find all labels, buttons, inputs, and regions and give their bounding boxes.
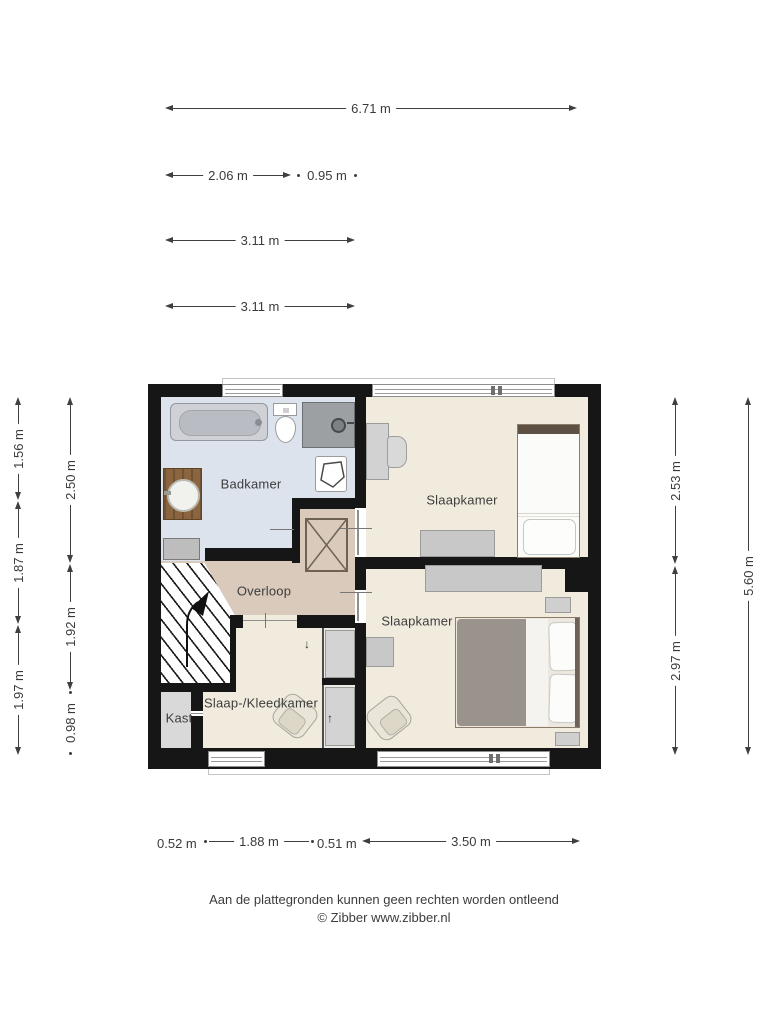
bed-footboard <box>518 425 579 434</box>
wall <box>158 683 236 692</box>
closet-door-panel <box>191 713 203 714</box>
shower-drain-icon <box>331 418 346 433</box>
door-threshold <box>265 613 266 628</box>
door-threshold <box>340 528 372 529</box>
wall <box>230 617 236 692</box>
sliding-door-arrow-down-icon: ↓ <box>304 638 310 650</box>
dimension-top-seg1: 2.06 m <box>165 171 291 180</box>
window <box>222 384 283 397</box>
wall <box>355 397 366 508</box>
sink-basin-icon <box>167 479 200 512</box>
window-divider <box>491 386 495 395</box>
headboard <box>575 618 579 727</box>
dimension-left-outer-3: 1.97 m <box>14 625 23 755</box>
dimension-left-inner-2: 1.92 m <box>66 564 75 690</box>
sliding-door-track <box>322 628 324 678</box>
window <box>372 384 555 397</box>
sliding-door-track <box>322 685 324 748</box>
bathroom-door-threshold <box>270 529 294 530</box>
room-label-slaapkamer-top: Slaapkamer <box>426 493 497 508</box>
copyright-text: © Zibber www.zibber.nl <box>0 910 768 925</box>
shower-icon <box>302 402 355 448</box>
window-divider <box>489 754 493 763</box>
room-label-overloop: Overloop <box>237 584 291 599</box>
window-sill <box>208 768 550 775</box>
dimension-right-outer: 5.60 m <box>744 397 753 755</box>
sink-faucet-icon <box>164 491 171 495</box>
room-label-badkamer: Badkamer <box>221 477 282 492</box>
dimension-left-inner-3: 0.98 m <box>66 691 75 755</box>
duvet <box>457 619 526 726</box>
dimension-top-total: 6.71 m <box>165 104 577 113</box>
shelf-icon <box>366 637 394 667</box>
nightstand-icon <box>555 732 580 746</box>
window <box>208 751 265 767</box>
dimension-left-inner-1: 2.50 m <box>66 397 75 563</box>
dimension-left-outer-2: 1.87 m <box>14 501 23 624</box>
dresser-icon <box>420 530 495 557</box>
dimension-right-inner-2: 2.97 m <box>671 566 680 755</box>
room-label-slaapkamer-bottom: Slaapkamer <box>381 614 452 629</box>
dimension-top-seg4: 3.11 m <box>165 302 355 311</box>
wardrobe-icon <box>325 630 355 678</box>
window-divider <box>496 754 500 763</box>
disclaimer-text: Aan de plattegronden kunnen geen rechten… <box>0 892 768 907</box>
wall <box>292 498 355 509</box>
floorplan: ↓ ↑ Badkamer Slaapkamer Overloop <box>148 384 601 769</box>
wall <box>588 384 601 769</box>
toilet-icon <box>273 403 297 416</box>
dimension-bottom-seg4: 3.50 m <box>362 837 580 846</box>
window-divider <box>498 386 502 395</box>
desk-icon <box>366 423 389 480</box>
door-threshold <box>340 592 372 593</box>
wall <box>297 615 355 628</box>
door-panel <box>357 592 359 621</box>
room-label-kast: Kast <box>166 711 193 726</box>
door-panel <box>243 620 297 621</box>
room-label-slaap-kleedkamer: Slaap-/Kleedkamer <box>204 696 318 711</box>
dimension-bottom-seg2: 1.88 m <box>204 837 314 846</box>
window <box>377 751 550 767</box>
sink-vanity-icon <box>163 468 202 520</box>
laundry-basket-icon <box>315 456 347 492</box>
wardrobe-divider-wall <box>322 678 355 685</box>
single-bed-icon <box>517 424 580 558</box>
wall <box>191 692 203 748</box>
wall-column <box>565 569 588 592</box>
dimension-left-outer-1: 1.56 m <box>14 397 23 500</box>
bathtub-icon <box>170 403 268 441</box>
wall <box>355 623 366 748</box>
dimension-right-inner-1: 2.53 m <box>671 397 680 564</box>
dimension-bottom-seg1: 0.52 m <box>157 836 197 851</box>
dimension-bottom-seg3: 0.51 m <box>317 836 357 851</box>
dresser-icon <box>425 565 542 592</box>
radiator-icon <box>163 538 200 560</box>
double-bed-icon <box>455 617 580 728</box>
bathtub-faucet-icon <box>255 419 262 426</box>
desk-chair-icon <box>387 436 407 468</box>
nightstand-icon <box>545 597 571 613</box>
pillow-icon <box>523 519 576 555</box>
bed-throw <box>526 619 548 726</box>
dimension-top-seg2: 0.95 m <box>297 171 357 180</box>
wall <box>355 557 366 590</box>
wall <box>148 384 161 769</box>
floorplan-page: 6.71 m 2.06 m 0.95 m 3.11 m 3.11 m 1.56 … <box>0 0 768 1024</box>
sliding-door-arrow-up-icon: ↑ <box>327 712 333 724</box>
shaft-icon <box>305 518 348 572</box>
dimension-top-seg3: 3.11 m <box>165 236 355 245</box>
wall <box>205 548 300 561</box>
door-panel <box>357 510 359 555</box>
